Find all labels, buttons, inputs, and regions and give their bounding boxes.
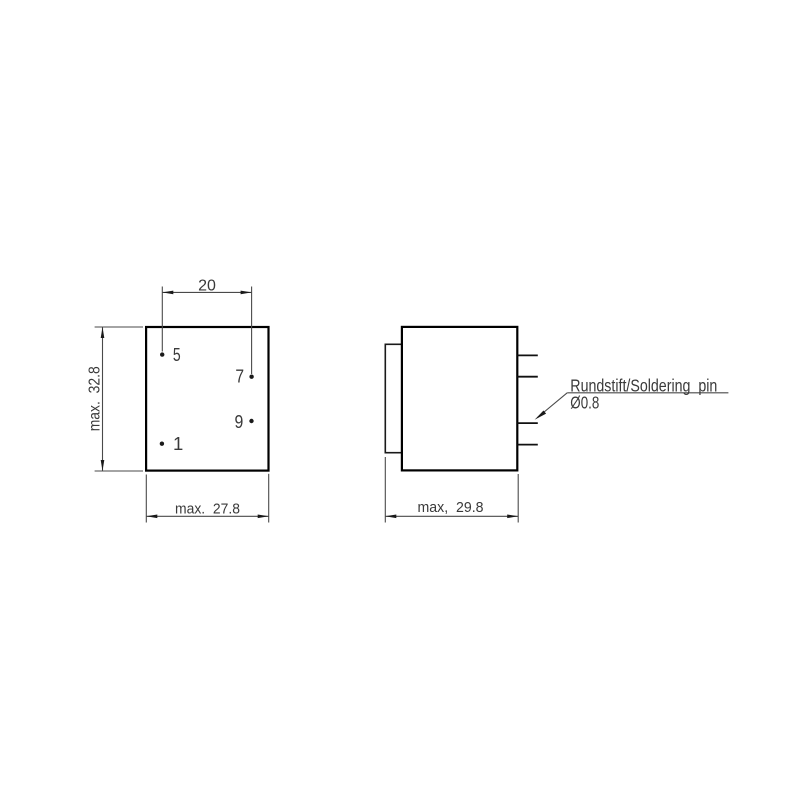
svg-text:7: 7 bbox=[235, 366, 244, 387]
svg-text:max. 32.8: max. 32.8 bbox=[87, 366, 104, 431]
svg-text:1: 1 bbox=[173, 433, 183, 454]
svg-text:5: 5 bbox=[173, 344, 181, 365]
svg-text:max. 27.8: max. 27.8 bbox=[175, 500, 240, 517]
svg-text:20: 20 bbox=[198, 277, 216, 294]
svg-text:Ø0.8: Ø0.8 bbox=[570, 393, 599, 413]
svg-text:max, 29.8: max, 29.8 bbox=[418, 499, 484, 516]
svg-text:9: 9 bbox=[235, 411, 244, 432]
